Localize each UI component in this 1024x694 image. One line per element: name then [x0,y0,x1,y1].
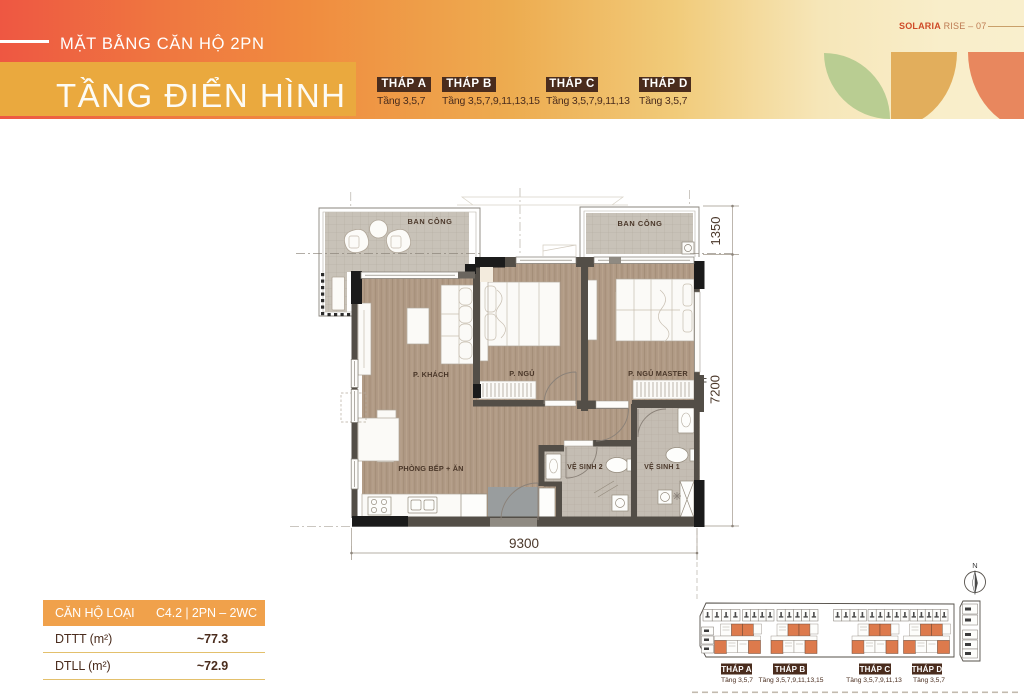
svg-text:BAN CÔNG: BAN CÔNG [617,219,662,228]
svg-text:Tầng 3,5,7,9,11,13,15: Tầng 3,5,7,9,11,13,15 [759,675,824,684]
svg-text:Tầng 3,5,7: Tầng 3,5,7 [721,675,753,684]
svg-text:7200: 7200 [708,375,723,404]
svg-text:THÁP A: THÁP A [721,665,752,674]
svg-text:Tầng 3,5,7: Tầng 3,5,7 [913,675,945,684]
svg-text:P. NGỦ MASTER: P. NGỦ MASTER [628,369,688,378]
svg-text:PHÒNG BẾP + ĂN: PHÒNG BẾP + ĂN [398,463,463,473]
svg-text:VỆ SINH 1: VỆ SINH 1 [644,462,680,471]
svg-text:N: N [972,561,977,570]
svg-text:P. KHÁCH: P. KHÁCH [413,370,449,379]
svg-text:THÁP B: THÁP B [775,665,806,674]
svg-text:VỆ SINH 2: VỆ SINH 2 [567,462,603,471]
svg-text:THÁP D: THÁP D [912,665,943,674]
svg-text:1350: 1350 [708,217,723,246]
svg-text:BAN CÔNG: BAN CÔNG [407,217,452,226]
svg-text:Tầng 3,5,7,9,11,13: Tầng 3,5,7,9,11,13 [846,675,902,684]
svg-text:P. NGỦ: P. NGỦ [509,369,534,378]
svg-text:THÁP C: THÁP C [860,665,891,674]
svg-text:9300: 9300 [509,536,539,551]
